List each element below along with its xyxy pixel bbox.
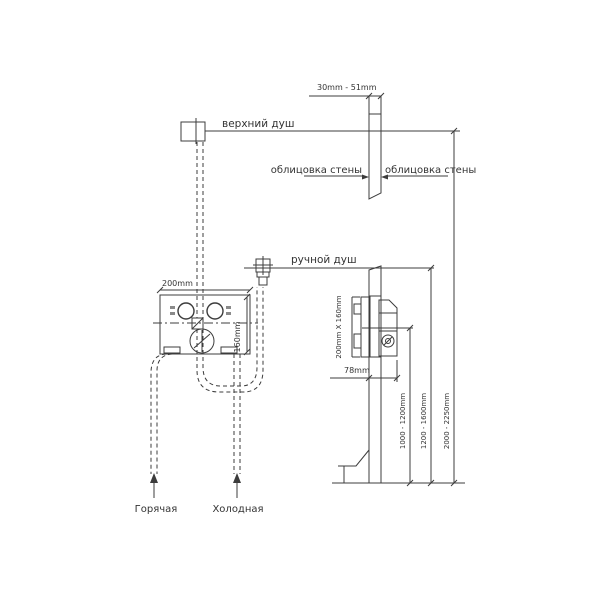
hand-shower-outlet [253,256,273,285]
cladding-callout-right: облицовка стены [381,165,476,180]
cold-supply-label: Холодная [212,504,263,515]
hot-supply-label: Горячая [135,504,178,515]
height-dimension-lines: 1000 - 1200mm 1200 - 1600mm 2000 - 2250m… [399,128,457,486]
hand-shower-hose [197,287,263,392]
left-valve-knob [178,303,194,319]
floor [332,450,465,483]
dim-overhead-height-label: 2000 - 2250mm [443,393,451,449]
dim-box-face-label: 200mm X 160mm [335,295,343,358]
mixer-box-front [153,295,258,354]
riser-pipe [197,142,203,318]
wall-cladding-right-label: облицовка стены [385,165,476,176]
front-view: 200mm 160mm [135,118,460,515]
cladding-callout-left: облицовка стены [271,165,369,180]
dim-box-face: 200mm X 160mm [335,295,360,358]
dim-cladding-thickness: 30mm - 51mm [309,83,384,99]
dim-box-height: 160mm [233,294,250,355]
mixer-box-side [354,297,397,357]
dim-box-width: 200mm [157,279,253,293]
wall-cladding-left-label: облицовка стены [271,165,362,176]
hand-shower-label: ручной душ [291,254,357,266]
dim-box-width-label: 200mm [162,279,193,288]
dim-mixer-height-label: 1000 - 1200mm [399,393,407,449]
dim-box-height-label: 160mm [233,321,242,352]
wall-strip-top [369,96,381,114]
wall-strip-middle [369,266,381,296]
hot-supply-arrow [150,473,158,498]
wall-section: 30mm - 51mm облицовка стены облицовка ст… [271,83,477,486]
overhead-shower-label: верхний душ [222,118,294,130]
hot-supply-pipe [151,354,172,474]
cold-supply-arrow [233,473,241,498]
overhead-shower-arm [181,118,205,144]
right-valve-knob [207,303,223,319]
cold-supply-pipe [234,354,240,474]
diagram-svg: 200mm 160mm [0,0,600,600]
wall-strip-upper [369,114,381,199]
dim-hand-shower-height-label: 1200 - 1600mm [420,393,428,449]
dim-cladding-thickness-label: 30mm - 51mm [317,83,377,92]
dim-depth-label: 78mm [344,366,370,375]
dim-depth: 78mm [330,360,400,382]
shower-installation-diagram: 200mm 160mm [0,0,600,600]
